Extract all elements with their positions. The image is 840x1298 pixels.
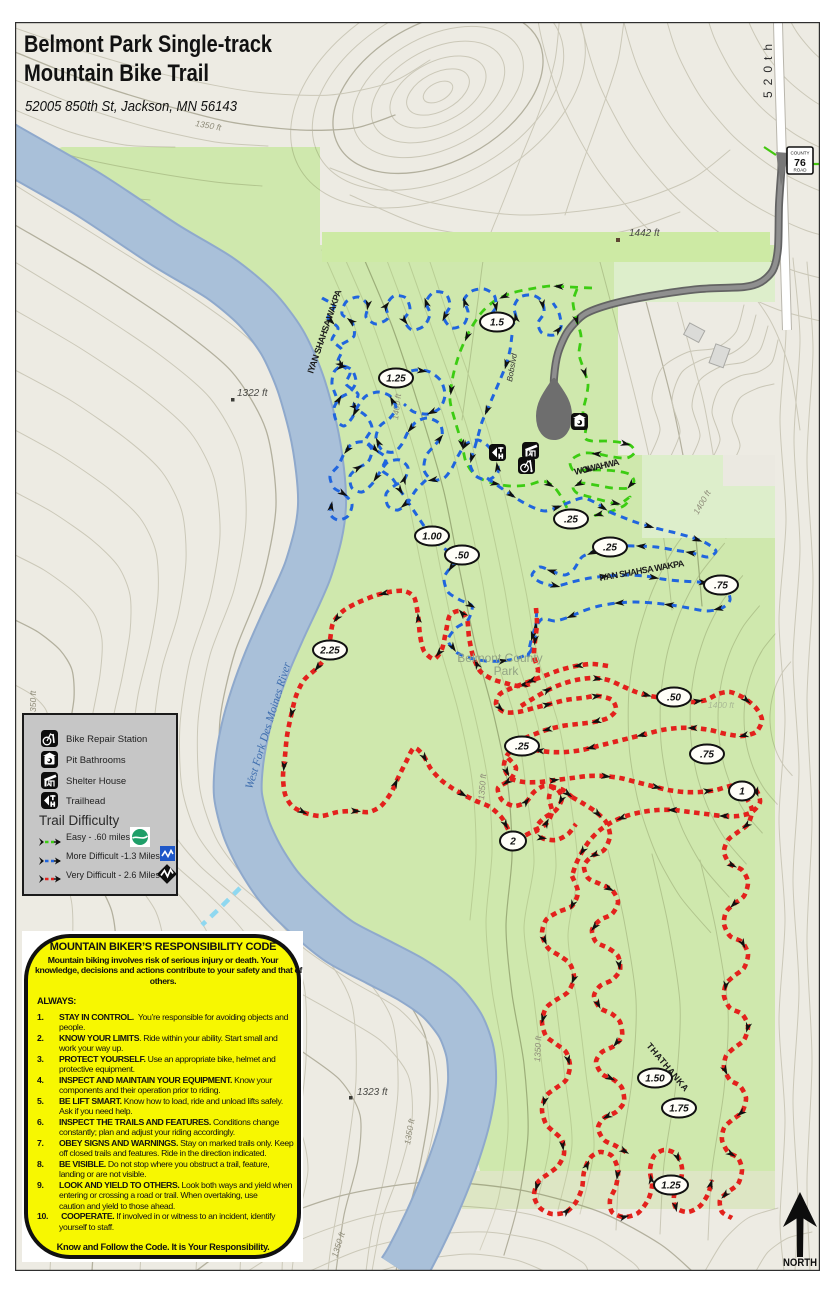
svg-text:52005 850th St, Jackson, MN 56: 52005 850th St, Jackson, MN 56143 bbox=[25, 98, 238, 115]
svg-text:1.50: 1.50 bbox=[645, 1073, 665, 1084]
svg-text:ROAD: ROAD bbox=[793, 168, 807, 173]
svg-text:1400 ft: 1400 ft bbox=[708, 700, 735, 710]
svg-text:1.25: 1.25 bbox=[661, 1180, 681, 1191]
svg-text:1350 ft: 1350 ft bbox=[532, 1035, 543, 1062]
svg-text:Park: Park bbox=[494, 664, 520, 678]
svg-text:COUNTY: COUNTY bbox=[791, 151, 810, 156]
svg-text:.25: .25 bbox=[603, 542, 617, 553]
svg-text:350 ft: 350 ft bbox=[28, 690, 38, 712]
svg-text:NORTH: NORTH bbox=[783, 1257, 817, 1269]
svg-text:.75: .75 bbox=[714, 580, 728, 591]
svg-text:Belmont Park Single-track: Belmont Park Single-track bbox=[24, 31, 273, 58]
svg-text:520th: 520th bbox=[761, 38, 775, 98]
svg-text:.25: .25 bbox=[564, 514, 578, 525]
svg-text:2.25: 2.25 bbox=[319, 645, 340, 656]
svg-text:.50: .50 bbox=[455, 550, 469, 561]
svg-text:.75: .75 bbox=[700, 749, 714, 760]
svg-text:Belmont County: Belmont County bbox=[457, 651, 542, 665]
svg-text:1322 ft: 1322 ft bbox=[237, 388, 269, 399]
svg-text:1323 ft: 1323 ft bbox=[357, 1087, 389, 1098]
svg-text:1.75: 1.75 bbox=[669, 1103, 689, 1114]
svg-text:.50: .50 bbox=[667, 692, 681, 703]
svg-text:2: 2 bbox=[509, 836, 516, 847]
svg-text:Mountain Bike Trail: Mountain Bike Trail bbox=[24, 60, 209, 87]
svg-text:1.00: 1.00 bbox=[422, 531, 442, 542]
svg-text:1: 1 bbox=[739, 786, 745, 797]
svg-text:.25: .25 bbox=[515, 741, 529, 752]
svg-text:1.5: 1.5 bbox=[490, 317, 504, 328]
svg-text:1.25: 1.25 bbox=[386, 373, 406, 384]
svg-text:1442 ft: 1442 ft bbox=[629, 228, 661, 239]
